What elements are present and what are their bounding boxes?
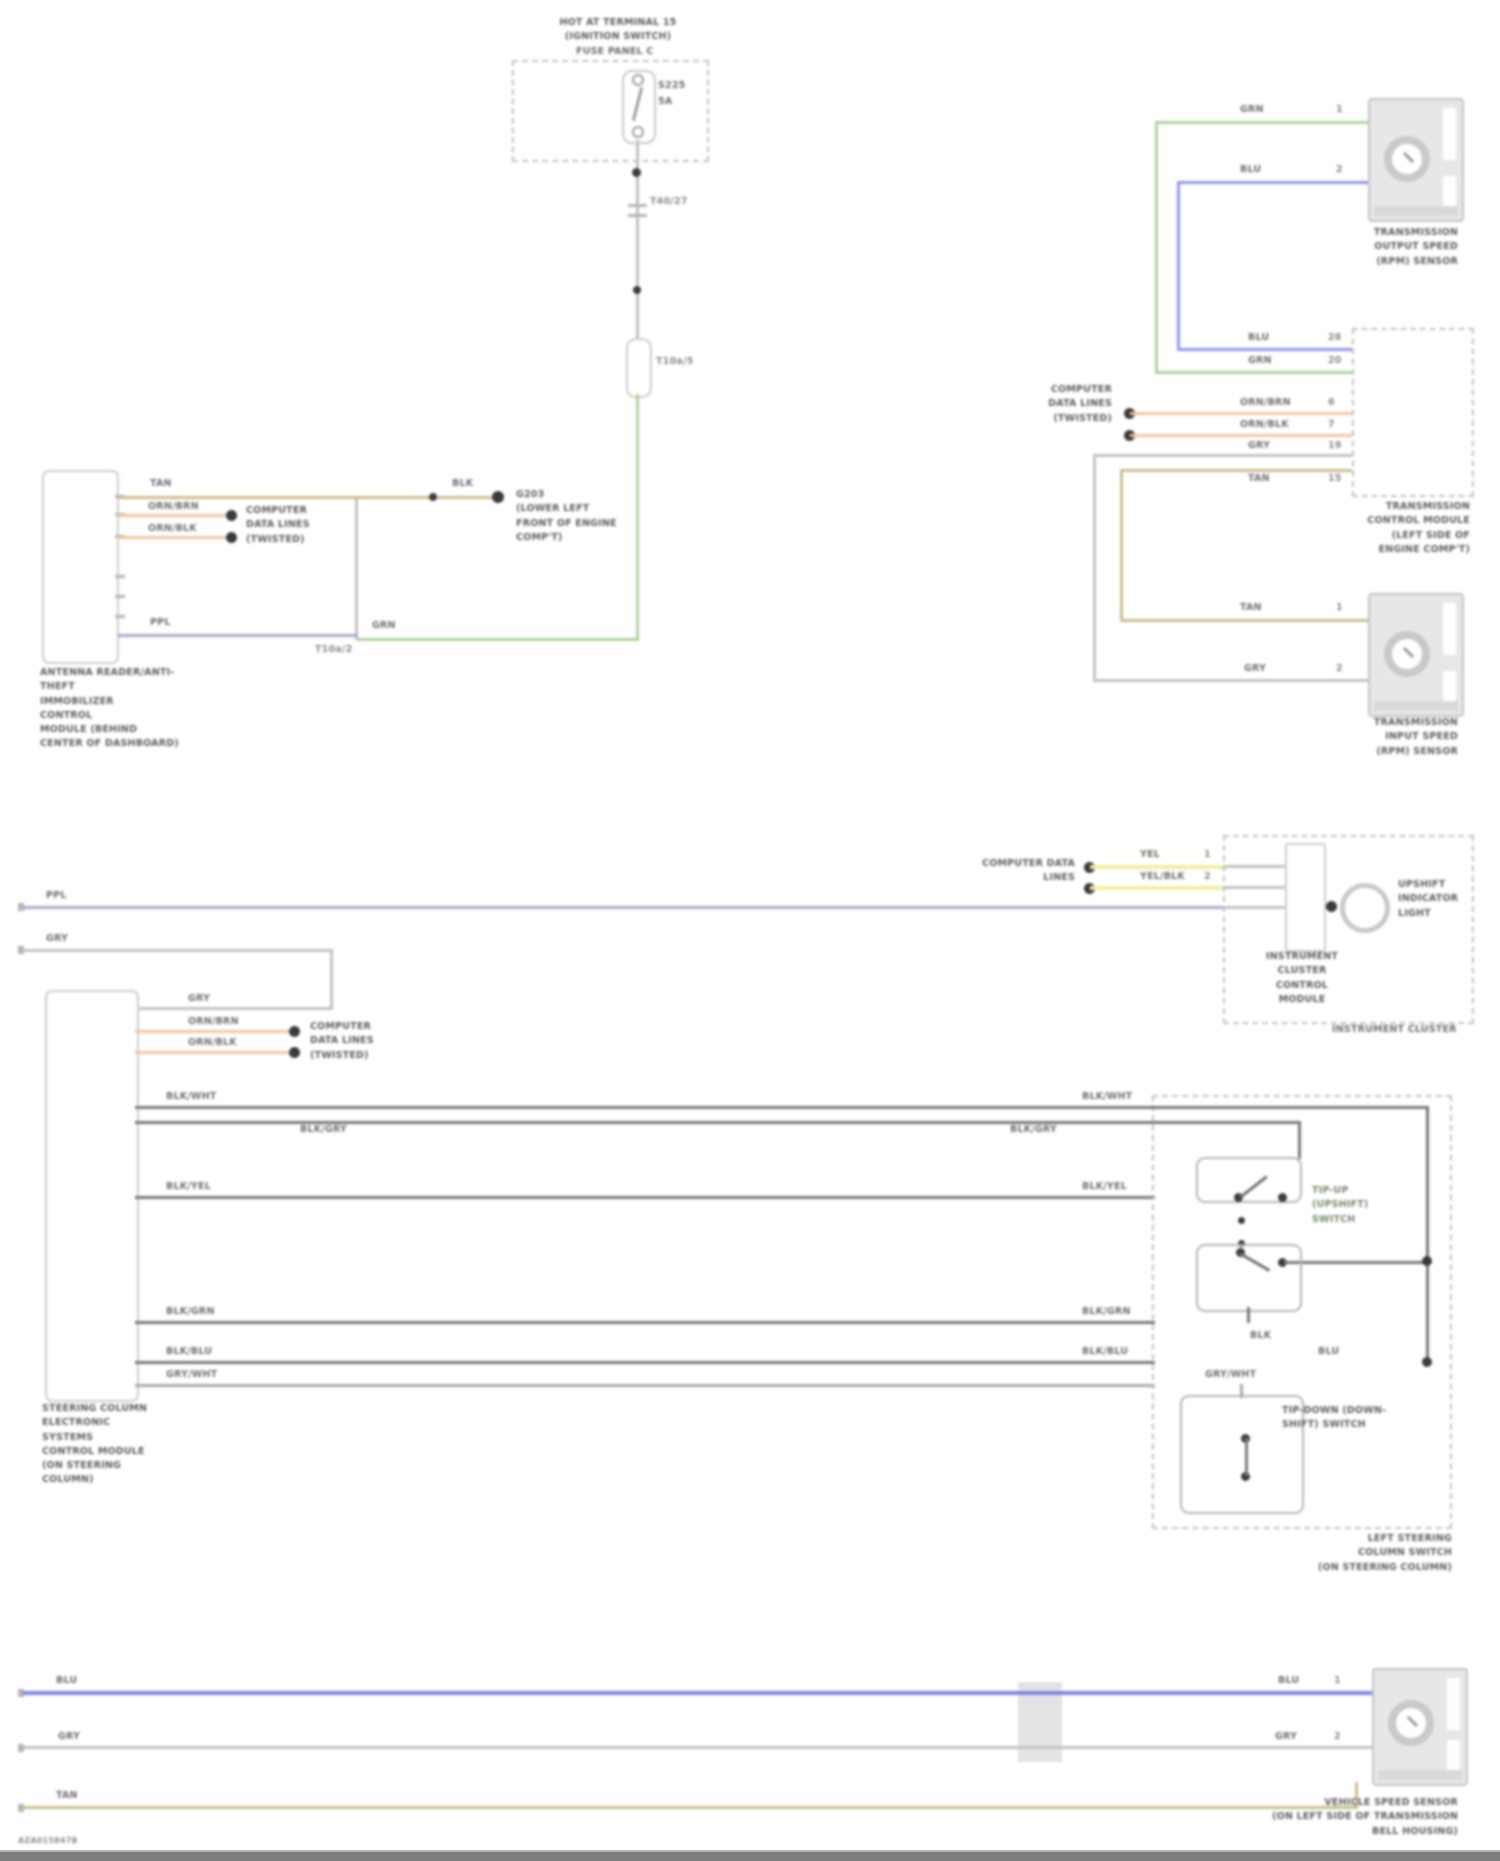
wire-internal <box>1223 865 1285 868</box>
wire-row-1 <box>135 1106 1155 1109</box>
cluster-inner-label: INSTRUMENT CLUSTER CONTROL MODULE <box>1252 950 1352 1007</box>
vehicle-speed-sensor-label: VEHICLE SPEED SENSOR (ON LEFT SIDE OF TR… <box>1210 1796 1458 1839</box>
pin-number: 28 <box>1328 332 1342 343</box>
wire-color-label: BLU <box>1278 1675 1299 1686</box>
sensor-slot <box>1443 176 1456 206</box>
wire-blue-long <box>23 1691 1372 1695</box>
tcm-label: TRANSMISSION CONTROL MODULE (LEFT SIDE O… <box>1330 500 1470 557</box>
wire-internal <box>1245 1438 1248 1476</box>
wire-color-label: TAN <box>150 478 172 489</box>
computer-data-callout: COMPUTER DATA LINES (TWISTED) <box>990 383 1112 426</box>
pin-number: 1 <box>1336 104 1343 115</box>
junction-label: T10a/2 <box>315 644 352 655</box>
wire-color-label: BLK/GRN <box>1082 1306 1131 1317</box>
computer-data-callout: COMPUTER DATA LINES (TWISTED) <box>310 1020 420 1063</box>
pin-number: 7 <box>1328 419 1335 430</box>
twisted-pair-dot <box>289 1026 300 1037</box>
wire-row-2 <box>135 1121 1155 1124</box>
bottom-bar <box>0 1850 1500 1861</box>
wire-color-label: GRY/WHT <box>166 1369 217 1380</box>
wire-gray <box>23 949 330 952</box>
wire-blue <box>1177 181 1368 184</box>
wire-color-label: GRY <box>188 993 210 1004</box>
wire-green <box>1155 371 1352 374</box>
wire-yellow-2 <box>1090 886 1223 890</box>
connector-pin-tick <box>115 575 125 578</box>
computer-data-callout: COMPUTER DATA LINES (TWISTED) <box>246 504 356 547</box>
wire-row-3 <box>135 1196 1155 1199</box>
sensor-slot <box>1447 1740 1460 1770</box>
pin-number: 2 <box>1334 1731 1341 1742</box>
pin-number: 6 <box>1328 397 1335 408</box>
sensor-slot <box>1443 108 1456 160</box>
cluster-connector-bar <box>1285 843 1326 952</box>
wire-tan <box>1120 619 1368 622</box>
steering-module-label: STEERING COLUMN ELECTRONIC SYSTEMS CONTR… <box>42 1402 192 1488</box>
inline-connector <box>626 338 652 398</box>
wire-color-label: TAN <box>1240 602 1262 613</box>
wire-gray <box>1093 454 1352 457</box>
pin-number: 2 <box>1336 663 1343 674</box>
fuse-title: HOT AT TERMINAL 15 (IGNITION SWITCH) <box>488 16 748 45</box>
connector-label: T10a/5 <box>656 356 693 367</box>
wire-color-label: BLK <box>1250 1330 1271 1341</box>
wire-purple-long <box>23 906 1223 909</box>
ground-dot <box>492 491 504 503</box>
wire-color-label: GRN <box>372 620 396 631</box>
switch-loop <box>1196 1244 1302 1312</box>
wire-color-label: BLU <box>1240 164 1261 175</box>
junction-dot <box>1422 1256 1432 1266</box>
antitheft-module-label: ANTENNA READER/ANTI-THEFT IMMOBILIZER CO… <box>40 666 200 752</box>
wire-orange-1 <box>117 514 230 517</box>
wire-blue <box>1177 348 1352 351</box>
fuse-terminal-bottom <box>632 126 644 138</box>
wire-internal <box>1152 1106 1428 1109</box>
pin-number: 1 <box>1334 1675 1341 1686</box>
indicator-lamp-label: UPSHIFT INDICATOR LIGHT <box>1398 878 1468 921</box>
upshift-switch-label: TIP-UP (UPSHIFT) SWITCH <box>1312 1184 1392 1227</box>
switch-contact-dot <box>1278 1193 1287 1202</box>
wire-green-horizontal <box>357 638 639 641</box>
vehicle-speed-sensor <box>1372 1668 1468 1786</box>
junction-dot <box>1422 1357 1432 1367</box>
wire-tan-long <box>23 1806 1358 1809</box>
instrument-cluster-label: INSTRUMENT CLUSTER <box>1332 1024 1457 1035</box>
input-speed-sensor <box>1368 593 1464 717</box>
wire-internal <box>1298 1121 1301 1159</box>
sensor-base <box>1374 206 1458 216</box>
wiring-diagram-page: HOT AT TERMINAL 15 (IGNITION SWITCH) FUS… <box>0 0 1500 1861</box>
wire-gray-vertical <box>1093 454 1096 682</box>
wire-gray <box>135 1007 333 1010</box>
wire-tan <box>1120 469 1352 472</box>
wire-color-label: BLK/BLU <box>166 1346 212 1357</box>
wire-color-label: BLK/WHT <box>166 1091 216 1102</box>
wire-tan-vertical <box>1120 469 1123 622</box>
wire-color-label: BLU <box>1318 1346 1339 1357</box>
diagram-id: AZA015847B <box>18 1836 78 1845</box>
wire-color-label: ORN/BLK <box>1240 419 1289 430</box>
pin-number: 19 <box>1328 440 1342 451</box>
connector-pin-tick <box>628 204 647 207</box>
wire-tan <box>117 496 497 499</box>
twisted-pair-dot <box>226 510 237 521</box>
wire-gray-vertical <box>330 949 333 1009</box>
twisted-pair-dot <box>226 532 237 543</box>
downshift-switch-label: TIP-DOWN (DOWN- SHIFT) SWITCH <box>1282 1404 1412 1433</box>
wire-row-4 <box>135 1321 1155 1324</box>
wire-purple <box>117 634 357 637</box>
wire-green <box>1155 121 1368 124</box>
wire-internal-bus <box>1426 1106 1429 1364</box>
output-speed-sensor-label: TRANSMISSION OUTPUT SPEED (RPM) SENSOR <box>1328 226 1458 269</box>
wire-orange-2 <box>117 536 230 539</box>
wire-color-label: PPL <box>150 617 171 628</box>
sensor-slot <box>1443 603 1456 655</box>
indicator-lamp-icon <box>1340 883 1390 933</box>
output-speed-sensor <box>1368 98 1464 222</box>
pin-number: 15 <box>1328 473 1342 484</box>
fuse-panel-label: FUSE PANEL C <box>576 46 653 57</box>
wire-color-label: TAN <box>1248 473 1270 484</box>
wire-color-label: BLK/YEL <box>166 1181 211 1192</box>
wire-color-label: GRN <box>1248 355 1272 366</box>
wire-color-label: PPL <box>46 890 67 901</box>
ground-location-label: G203 (LOWER LEFT FRONT OF ENGINE COMP'T) <box>516 488 646 545</box>
splice-dot <box>429 493 437 501</box>
pin-number: 2 <box>1204 871 1211 882</box>
connector-pin-tick <box>115 595 125 598</box>
pin-number: 1 <box>1336 602 1343 613</box>
wire-color-label: BLK/GRY <box>300 1124 347 1135</box>
wire-internal <box>1240 1384 1243 1398</box>
wire-gray <box>1093 679 1368 682</box>
wire-color-label: BLK/BLU <box>1082 1346 1128 1357</box>
wire-color-label: BLK <box>452 478 473 489</box>
wire-color-label: ORN/BLK <box>188 1037 237 1048</box>
wire-internal <box>1223 886 1285 889</box>
wire-row-6 <box>135 1384 1155 1387</box>
wire-color-label: ORN/BLK <box>148 523 197 534</box>
wire-orange-1 <box>135 1030 295 1033</box>
wire-internal <box>1152 1121 1300 1124</box>
wire-yellow-1 <box>1090 865 1223 869</box>
sensor-slot <box>1447 1678 1460 1730</box>
wire-color-label: GRY <box>58 1731 80 1742</box>
wire-color-label: YEL/BLK <box>1140 871 1185 882</box>
wire-blue-vertical <box>1177 181 1180 350</box>
wire-green-vertical <box>1155 121 1158 373</box>
wire-color-label: BLU <box>1248 332 1269 343</box>
connector-pin-tick <box>628 214 647 217</box>
wire-color-label: ORN/BRN <box>148 501 199 512</box>
wire-color-label: BLK/GRY <box>1010 1124 1057 1135</box>
wire-color-label: BLK/YEL <box>1082 1181 1127 1192</box>
wire-orange-2 <box>135 1051 295 1054</box>
wire-color-label: YEL <box>1140 849 1160 860</box>
wire-gray-long <box>23 1746 1372 1749</box>
connector-pin-tick <box>115 615 125 618</box>
wiring-diagram: HOT AT TERMINAL 15 (IGNITION SWITCH) FUS… <box>0 0 1500 1861</box>
wire-color-label: ORN/BRN <box>188 1016 239 1027</box>
input-speed-sensor-label: TRANSMISSION INPUT SPEED (RPM) SENSOR <box>1328 716 1458 759</box>
lamp-terminal-dot <box>1326 901 1337 912</box>
antitheft-module-box <box>42 470 119 664</box>
pin-number: 2 <box>1336 164 1343 175</box>
wire-color-label: ORN/BRN <box>1240 397 1291 408</box>
pin-number: 20 <box>1328 355 1342 366</box>
switch-detent-dot <box>1238 1217 1245 1224</box>
twisted-pair-dot <box>289 1047 300 1058</box>
wire-color-label: BLK/GRN <box>166 1306 215 1317</box>
pin-number: 1 <box>1204 849 1211 860</box>
wire-color-label: GRY <box>1244 663 1266 674</box>
wire-internal <box>1247 1307 1250 1323</box>
wire-color-label: GRY <box>1248 440 1270 451</box>
wire-row-5 <box>135 1361 1155 1364</box>
wire-color-label: GRN <box>1240 104 1264 115</box>
column-switch-label: LEFT STEERING COLUMN SWITCH (ON STEERING… <box>1310 1532 1452 1575</box>
connector-label: T40/27 <box>650 196 688 207</box>
splice-dot <box>632 168 641 177</box>
sensor-base <box>1374 701 1458 711</box>
wire-color-label: BLK/WHT <box>1082 1091 1132 1102</box>
fuse-terminal-top <box>632 74 644 86</box>
fuse-panel-box <box>512 60 709 162</box>
computer-data-callout: COMPUTER DATA LINES <box>955 857 1075 886</box>
wire-color-label: TAN <box>56 1790 78 1801</box>
wire-color-label: BLU <box>56 1675 77 1686</box>
wire-orange-2 <box>1130 434 1352 437</box>
wire-color-label: GRY <box>46 933 68 944</box>
fuse-amps: 5A <box>658 96 672 107</box>
tcm-box <box>1352 328 1474 497</box>
wire-orange-1 <box>1130 412 1352 415</box>
sensor-slot <box>1443 671 1456 701</box>
sensor-base <box>1378 1770 1462 1780</box>
wire-color-label: GRY <box>1275 1731 1297 1742</box>
fuse-name: S225 <box>658 80 685 91</box>
wire-internal <box>1284 1261 1428 1264</box>
splice-dot <box>633 286 641 294</box>
steering-module-box <box>45 990 139 1402</box>
